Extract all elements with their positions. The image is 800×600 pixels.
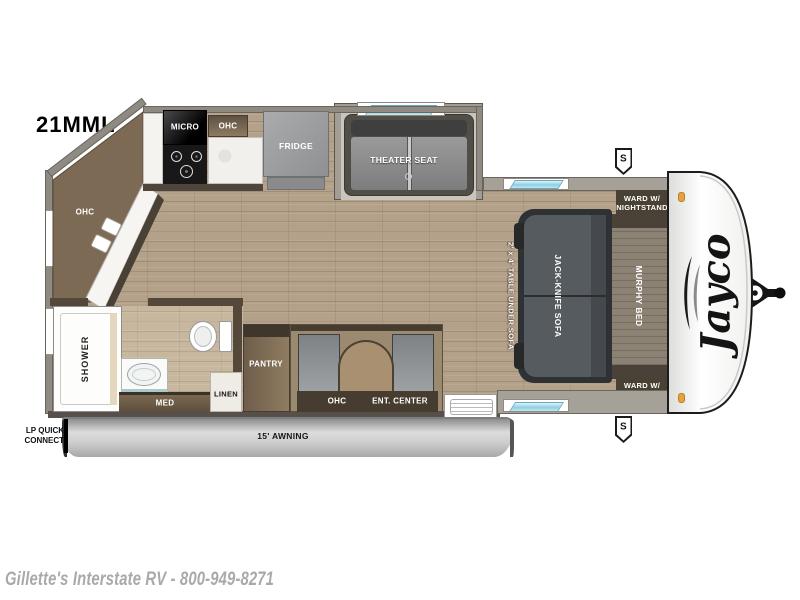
marker-light-icon bbox=[678, 192, 685, 202]
pantry-top bbox=[244, 325, 289, 337]
ent-ohc-label: OHC bbox=[328, 397, 347, 406]
fridge-label: FRIDGE bbox=[279, 141, 313, 151]
sink-basin bbox=[127, 363, 161, 386]
murphy-bed-label: MURPHY BED bbox=[634, 266, 644, 327]
rv-floorplan: 21MML THEATER SEAT OHC MICRO bbox=[0, 0, 800, 600]
fridge-door bbox=[267, 177, 325, 190]
ent-top-edge bbox=[291, 325, 442, 331]
window-rear-2 bbox=[46, 308, 53, 355]
lp-quick-connect-label: LP QUICK CONNECT bbox=[18, 426, 64, 445]
ent-panel-right bbox=[392, 334, 434, 392]
burner-icon bbox=[171, 151, 182, 162]
table-under-sofa-label: 2' x 4' TABLE UNDER SOFA bbox=[507, 242, 516, 350]
ohc-corner-label: OHC bbox=[76, 208, 95, 217]
step-treads bbox=[450, 399, 493, 415]
entry-door-step bbox=[444, 394, 497, 418]
window-bedroom-bottom bbox=[503, 399, 569, 412]
ent-arch bbox=[338, 340, 394, 393]
theater-seat-back bbox=[351, 120, 467, 136]
cupholder-icon bbox=[405, 173, 412, 180]
wall-step bbox=[476, 106, 483, 191]
shower-seat bbox=[110, 313, 117, 405]
window-glass bbox=[509, 180, 564, 189]
bath-wall-b bbox=[148, 298, 243, 306]
sink-basin-inner bbox=[132, 368, 156, 381]
stove bbox=[163, 145, 207, 184]
speaker-icon: S bbox=[615, 416, 632, 443]
ent-center-label: ENT. CENTER bbox=[372, 397, 428, 406]
toilet-bowl bbox=[189, 321, 217, 352]
dealer-footer: Gillette's Interstate RV - 800-949-8271 bbox=[5, 569, 274, 591]
marker-light-icon bbox=[678, 393, 685, 403]
kitchen-counter bbox=[208, 137, 263, 184]
awning-label: 15' AWNING bbox=[257, 431, 308, 441]
window-bedroom-top bbox=[503, 178, 569, 190]
sofa-cushions bbox=[524, 215, 606, 377]
jack-wheel-hub bbox=[752, 290, 758, 296]
speaker-letter: S bbox=[620, 422, 627, 433]
med-label: MED bbox=[156, 399, 175, 408]
bath-wall-a bbox=[50, 298, 88, 306]
lp-quick-connect-tick bbox=[64, 419, 68, 453]
sofa-label: JACK-KNIFE SOFA bbox=[553, 255, 563, 338]
toilet-bowl-inner bbox=[194, 326, 212, 347]
brand-logo: Jayco bbox=[693, 233, 740, 352]
speaker-letter: S bbox=[620, 154, 627, 165]
sofa-divider bbox=[524, 295, 606, 297]
counter-edge bbox=[143, 184, 263, 191]
counter-sliver bbox=[143, 113, 163, 184]
awning-cap-right bbox=[510, 419, 514, 457]
ent-panel-left bbox=[298, 334, 340, 392]
microwave-label: MICRO bbox=[171, 123, 199, 132]
theater-seat-label: THEATER SEAT bbox=[370, 155, 438, 165]
jackknife-sofa bbox=[518, 209, 612, 383]
ohc-cabinet-label: OHC bbox=[219, 122, 238, 131]
pantry-label: PANTRY bbox=[249, 360, 283, 369]
hitch-ball bbox=[775, 288, 786, 299]
burner-icon bbox=[180, 165, 193, 178]
speaker-icon: S bbox=[615, 148, 632, 175]
bath-wall-c bbox=[233, 298, 242, 374]
linen-label: LINEN bbox=[214, 390, 238, 399]
shower-label: SHOWER bbox=[80, 336, 90, 383]
toilet-tank bbox=[219, 321, 232, 352]
window-glass bbox=[509, 402, 565, 412]
burner-icon bbox=[191, 151, 202, 162]
